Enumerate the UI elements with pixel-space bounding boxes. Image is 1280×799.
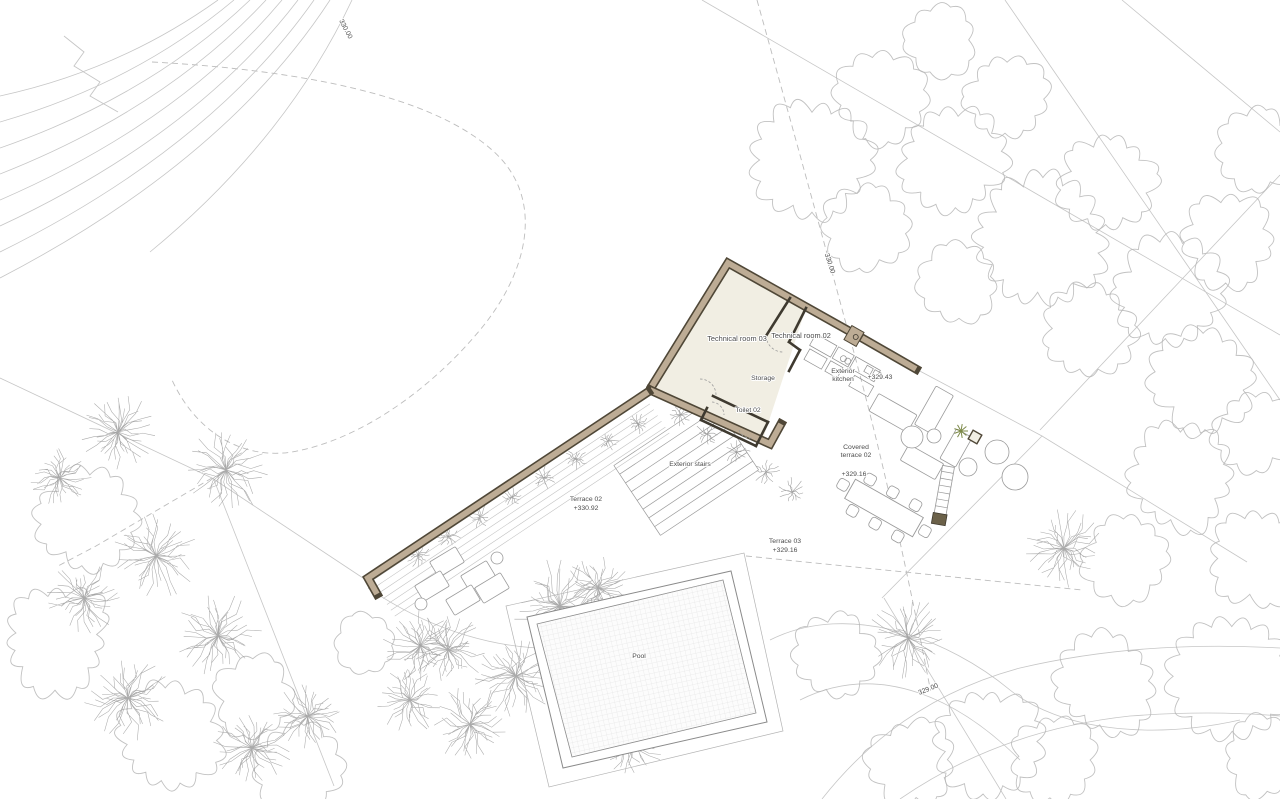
- site-dashed-line: [58, 478, 212, 566]
- label-line: Terrace 02: [570, 496, 602, 503]
- stair-tread: [643, 444, 741, 509]
- sink: [844, 357, 852, 365]
- label-line: 329.00: [917, 682, 939, 696]
- site-line: [1122, 0, 1280, 132]
- paving-line: [379, 410, 654, 593]
- palm-tree-icon: [414, 616, 485, 681]
- label-line: Technical room 03: [707, 334, 767, 343]
- site-line: [0, 378, 212, 478]
- label-covered-terrace-elevation: +329.16: [842, 471, 867, 478]
- label-line: +329.43: [868, 374, 893, 381]
- label-line: +330.92: [574, 505, 599, 512]
- contour-line: [0, 0, 282, 200]
- label-toilet-02: Toilet 02: [735, 407, 761, 414]
- paving-line: [387, 421, 662, 604]
- label-contour-329-bottom: 329.00: [917, 682, 939, 696]
- label-terrace-03: Terrace 03+329.16: [769, 538, 801, 554]
- label-line: Exterior stairs: [669, 461, 711, 468]
- palm-tree-icon: [383, 610, 453, 681]
- tree-icon: [831, 50, 930, 149]
- palm-tree-icon: [82, 396, 155, 469]
- tree-icon: [1110, 232, 1230, 348]
- ladder-base: [931, 512, 947, 525]
- paving-line: [383, 415, 658, 598]
- site-dashed-line: [152, 62, 525, 453]
- contour-line: [0, 0, 330, 278]
- site-plan-drawing: Technical room 03Technical room 02Storag…: [0, 0, 1280, 799]
- site-dashed-line: [746, 556, 1082, 590]
- paving-line: [375, 404, 650, 587]
- label-line: Exterior: [831, 368, 855, 375]
- tree-icon: [790, 611, 882, 699]
- tree-icon: [915, 240, 997, 324]
- tree-icon: [1210, 511, 1280, 609]
- palm-tree-icon: [1026, 510, 1099, 588]
- tree-icon: [1079, 515, 1170, 607]
- round-table: [985, 440, 1009, 464]
- tree-icon: [1125, 420, 1234, 535]
- stair-tread: [655, 461, 753, 526]
- contour-line: [0, 0, 218, 96]
- tree-icon: [971, 169, 1109, 306]
- tree-icon: [932, 692, 1045, 799]
- round-table: [959, 458, 977, 476]
- palm-tree-icon: [434, 688, 505, 758]
- label-line: Toilet 02: [735, 407, 761, 414]
- tree-icon: [212, 653, 295, 740]
- sofa: [914, 386, 953, 434]
- palm-tree-icon: [115, 514, 195, 596]
- label-line: Terrace 03: [769, 538, 801, 545]
- label-pool: Pool: [632, 653, 646, 660]
- palm-tree-icon: [179, 596, 261, 674]
- label-line: Pool: [632, 653, 646, 660]
- sun-lounger: [415, 571, 450, 602]
- palm-tree-icon: [872, 602, 942, 678]
- label-terrace-02: Terrace 02+330.92: [570, 496, 602, 512]
- palm-tree-icon: [188, 432, 268, 508]
- sofa: [900, 444, 944, 479]
- tree-icon: [334, 611, 394, 674]
- tree-icon: [1180, 194, 1274, 291]
- tree-icon: [1164, 617, 1280, 742]
- label-line: terrace 02: [841, 452, 872, 459]
- round-table: [1002, 464, 1028, 490]
- palm-tree-icon: [84, 661, 165, 741]
- label-exterior-stairs: Exterior stairs: [669, 461, 711, 468]
- palm-tree-icon: [756, 460, 780, 484]
- stair-tread: [631, 426, 729, 491]
- terrace-paving: [371, 398, 669, 616]
- site-line: [822, 646, 1280, 799]
- label-contour-330-top: 330.00: [337, 18, 353, 40]
- palm-tree-icon: [779, 477, 803, 501]
- tree-icon: [1056, 135, 1162, 230]
- stair-edge: [614, 465, 661, 535]
- tree-icon: [961, 56, 1051, 139]
- stair-tread: [660, 470, 758, 535]
- counter-unit: [832, 347, 854, 367]
- site-plan-page: Technical room 03Technical room 02Storag…: [0, 0, 1280, 799]
- round-table: [901, 426, 923, 448]
- label-exterior-kitchen: Exteriorkitchen: [831, 368, 855, 383]
- label-line: +329.16: [773, 547, 798, 554]
- tree-icon: [1209, 392, 1280, 475]
- round-table: [927, 429, 941, 443]
- site-line: [702, 0, 1280, 335]
- tree-icon: [1051, 628, 1156, 738]
- chair: [917, 524, 932, 539]
- contour-line: [0, 0, 250, 148]
- palm-tree-icon: [378, 669, 440, 730]
- label-covered-terrace-02: Coveredterrace 02: [841, 444, 872, 459]
- tree-icon: [821, 183, 913, 273]
- label-storage: Storage: [751, 375, 775, 382]
- label-technical-room-03: Technical room 03: [707, 334, 767, 343]
- tree-icon: [7, 588, 109, 700]
- counter-unit: [804, 349, 827, 369]
- side-table: [491, 552, 503, 564]
- chair: [836, 477, 851, 492]
- label-line: kitchen: [832, 376, 854, 383]
- tree-icon: [1043, 282, 1141, 377]
- palm-tree-icon: [566, 451, 587, 470]
- contour-line: [0, 0, 266, 174]
- label-line: +329.16: [842, 471, 867, 478]
- tree-icon: [1011, 716, 1098, 799]
- label-line: 330.00: [337, 18, 353, 40]
- side-table: [415, 598, 427, 610]
- tree-icon: [252, 721, 346, 799]
- tree-icon: [1215, 105, 1280, 193]
- label-kitchen-elevation: +329.43: [868, 374, 893, 381]
- label-contour-330-right: 330.00: [823, 253, 836, 275]
- label-line: Technical room 02: [771, 331, 831, 340]
- contour-line: [150, 0, 352, 252]
- tree-icon: [32, 464, 142, 574]
- palm-tree-icon: [213, 715, 290, 781]
- label-technical-room-02: Technical room 02: [771, 331, 831, 340]
- contour-line: [0, 0, 298, 226]
- contour-line: [0, 0, 234, 122]
- site-line: [212, 478, 366, 580]
- label-line: Storage: [751, 375, 775, 382]
- label-line: Covered: [843, 444, 869, 451]
- label-line: 330.00: [823, 253, 836, 275]
- palm-tree-icon: [47, 567, 119, 634]
